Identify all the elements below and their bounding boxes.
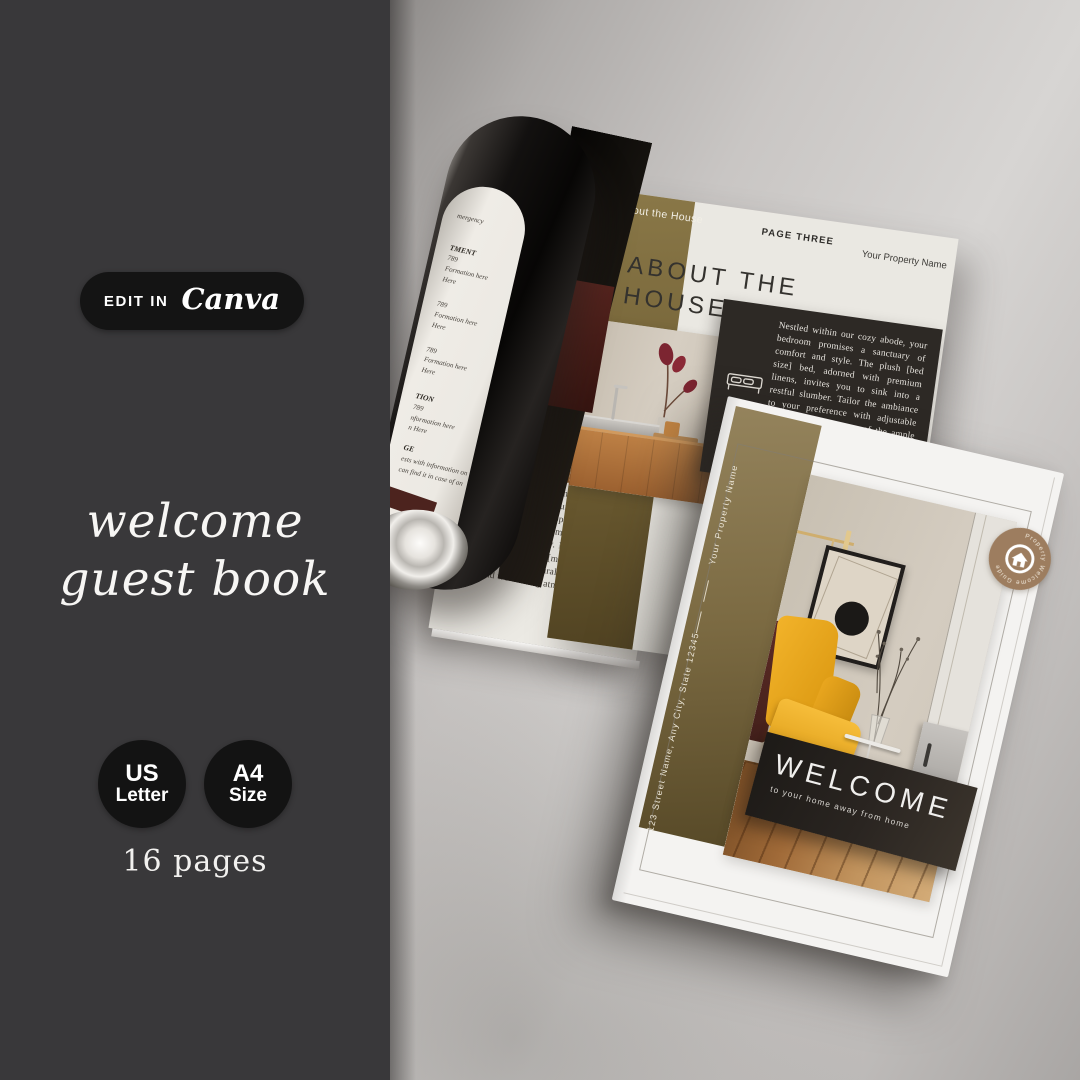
- a4-size-badge: A4 Size: [204, 740, 292, 828]
- product-listing-image: [Provide guests with the details about y…: [0, 0, 1080, 1080]
- canva-logo: Canva: [181, 285, 280, 314]
- page-count: 16 pages: [0, 847, 390, 877]
- us-letter-line-1: US: [125, 761, 158, 786]
- title-line-1: welcome: [0, 493, 390, 550]
- title-line-2: guest book: [0, 551, 390, 608]
- edit-in-label: EDIT IN: [104, 294, 169, 309]
- a4-line-1: A4: [233, 761, 264, 786]
- a4-line-2: Size: [229, 786, 267, 807]
- mug: [663, 421, 681, 438]
- band-divider-dash: [703, 580, 709, 602]
- info-sidebar: EDIT IN Canva welcome guest book US Lett…: [0, 0, 390, 1080]
- size-badges: US Letter A4 Size: [0, 740, 390, 828]
- us-letter-badge: US Letter: [98, 740, 186, 828]
- band-divider-dash: [696, 611, 702, 633]
- us-letter-line-2: Letter: [116, 786, 169, 807]
- curl-line: mergency: [456, 211, 521, 236]
- bed-icon: [724, 366, 765, 397]
- edit-in-canva-badge[interactable]: EDIT IN Canva: [80, 272, 304, 330]
- sideboard-handle: [923, 743, 932, 767]
- page-number-label: PAGE THREE: [761, 228, 835, 248]
- product-title: welcome guest book: [0, 493, 390, 608]
- property-name-header: Your Property Name: [861, 250, 947, 271]
